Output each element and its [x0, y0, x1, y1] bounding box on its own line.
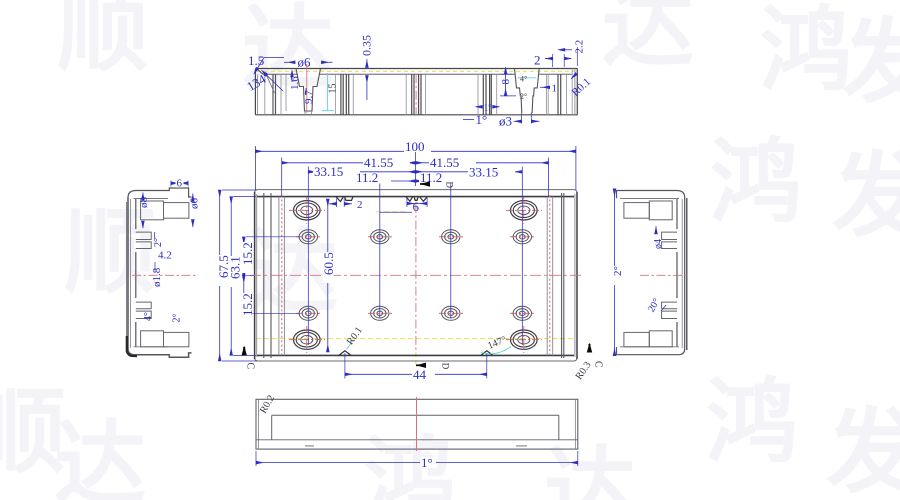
svg-text:鸿: 鸿	[364, 430, 456, 500]
svg-text:R0.1: R0.1	[345, 325, 365, 347]
svg-text:ø6: ø6	[298, 55, 312, 70]
svg-text:9.7: 9.7	[303, 90, 315, 104]
svg-text:20°: 20°	[646, 297, 663, 315]
svg-text:顺: 顺	[64, 202, 156, 304]
svg-text:1°: 1°	[476, 112, 488, 127]
svg-text:1°: 1°	[421, 455, 433, 470]
svg-text:2.2: 2.2	[574, 40, 586, 54]
svg-text:33.15: 33.15	[314, 164, 343, 179]
svg-text:2°: 2°	[612, 266, 624, 276]
svg-text:4°: 4°	[520, 74, 527, 83]
svg-text:11.2: 11.2	[420, 170, 442, 185]
svg-text:ø6: ø6	[188, 198, 200, 210]
svg-text:11.2: 11.2	[356, 170, 378, 185]
svg-text:4°: 4°	[143, 312, 154, 321]
svg-text:33.15: 33.15	[469, 165, 498, 180]
svg-text:D: D	[440, 363, 450, 370]
svg-text:6: 6	[177, 178, 183, 190]
svg-text:1.6: 1.6	[289, 76, 301, 90]
svg-text:发: 发	[832, 146, 900, 248]
svg-text:发: 发	[842, 12, 900, 114]
svg-text:147°: 147°	[486, 334, 508, 351]
svg-text:鸿: 鸿	[760, 0, 852, 102]
svg-text:R0.2: R0.2	[258, 393, 277, 415]
svg-text:1.5: 1.5	[248, 53, 264, 68]
svg-text:15.2: 15.2	[240, 242, 255, 265]
svg-text:鸿: 鸿	[706, 372, 798, 474]
svg-text:15: 15	[327, 84, 338, 94]
svg-text:15.2: 15.2	[240, 293, 255, 316]
svg-text:2°: 2°	[153, 238, 164, 247]
svg-text:1°: 1°	[484, 102, 493, 112]
svg-text:D: D	[445, 182, 455, 189]
svg-text:41.55: 41.55	[430, 155, 459, 170]
svg-text:ø4: ø4	[653, 239, 664, 249]
svg-text:顺: 顺	[57, 0, 149, 82]
svg-text:8: 8	[500, 79, 512, 85]
svg-text:44: 44	[413, 367, 427, 382]
svg-text:鸿: 鸿	[710, 132, 802, 234]
svg-text:1: 1	[552, 82, 558, 94]
svg-text:发: 发	[826, 402, 900, 500]
svg-text:C: C	[593, 361, 604, 368]
svg-text:6: 6	[413, 199, 420, 214]
svg-text:C: C	[245, 363, 256, 370]
svg-text:100: 100	[405, 139, 425, 154]
svg-text:2: 2	[357, 199, 363, 211]
svg-text:ø1.8: ø1.8	[151, 267, 163, 287]
svg-text:R0.1: R0.1	[569, 76, 593, 99]
svg-text:2°: 2°	[172, 314, 183, 323]
svg-text:R0.3: R0.3	[574, 360, 594, 382]
svg-text:2°: 2°	[520, 92, 527, 101]
svg-text:60.5: 60.5	[321, 252, 336, 275]
svg-text:达: 达	[54, 414, 146, 500]
svg-text:ø8: ø8	[138, 197, 150, 209]
svg-text:4.2: 4.2	[158, 250, 172, 262]
svg-text:41.55: 41.55	[364, 155, 393, 170]
svg-text:ø3: ø3	[499, 114, 512, 129]
svg-text:达: 达	[602, 0, 694, 78]
svg-text:2: 2	[534, 53, 541, 68]
svg-text:0.35: 0.35	[360, 35, 374, 56]
